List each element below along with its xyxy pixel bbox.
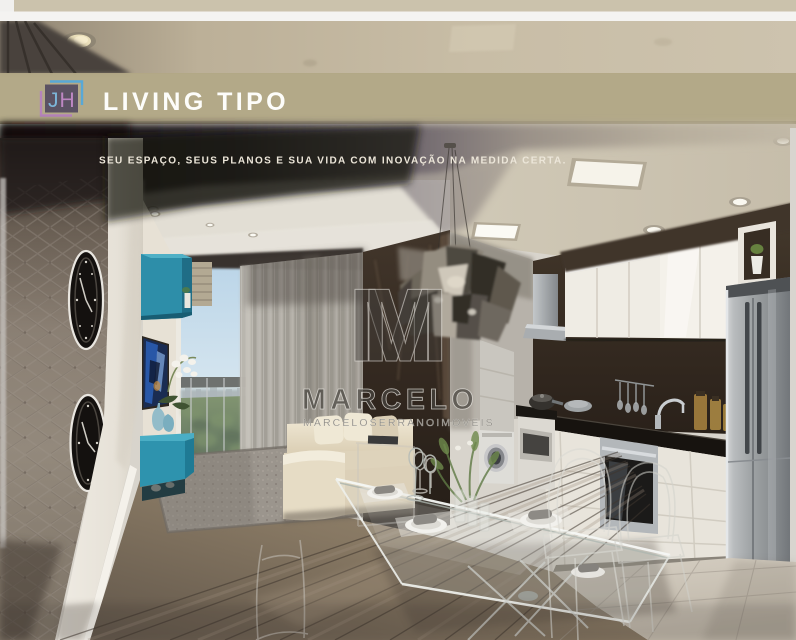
svg-text:J: J [48, 89, 59, 112]
svg-text:LIVING TIPO: LIVING TIPO [103, 88, 289, 116]
svg-text:M: M [362, 268, 449, 384]
svg-text:MARCELOSERRANOIMOVEIS: MARCELOSERRANOIMOVEIS [303, 417, 495, 429]
svg-text:SEU ESPAÇO, SEUS PLANOS E SUA: SEU ESPAÇO, SEUS PLANOS E SUA VIDA COM I… [99, 154, 567, 167]
svg-text:H: H [60, 89, 75, 112]
svg-text:MARCELO: MARCELO [302, 384, 478, 416]
